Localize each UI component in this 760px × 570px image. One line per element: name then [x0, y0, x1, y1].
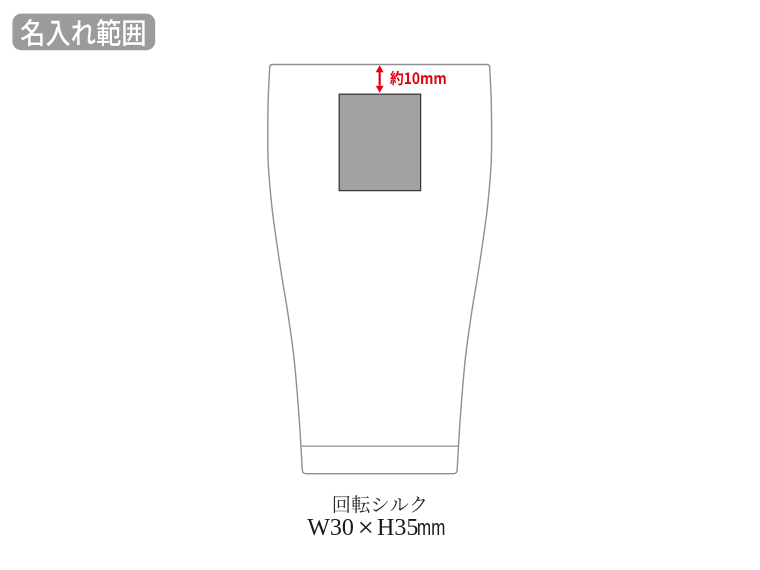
svg-text:mm: mm [417, 516, 446, 541]
svg-text:W30: W30 [307, 515, 354, 541]
svg-text:H35: H35 [377, 515, 418, 541]
